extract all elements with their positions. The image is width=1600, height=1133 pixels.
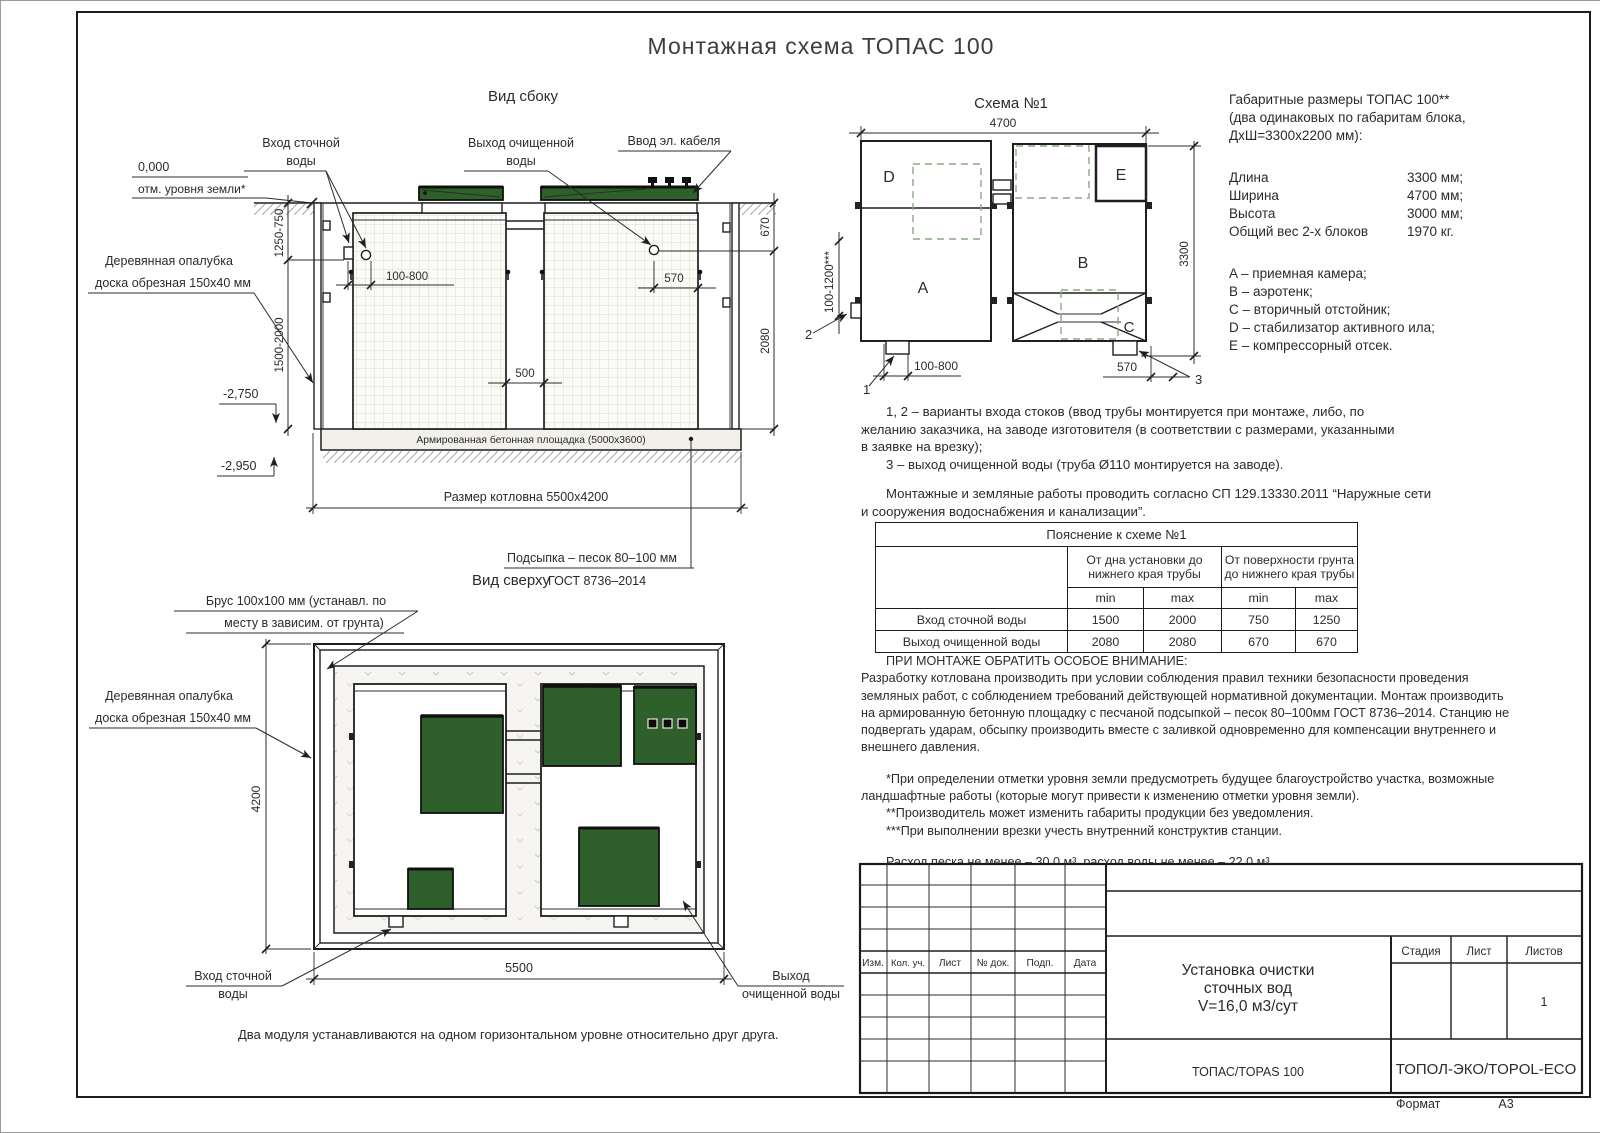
svg-text:доска обрезная 150х40 мм: доска обрезная 150х40 мм [95,711,251,725]
format-label: Формат [1396,1097,1440,1111]
outlet-port [649,245,658,254]
tank-lids [419,177,698,213]
side-view-title: Вид сбоку [488,88,558,105]
svg-text:воды: воды [218,987,247,1001]
rev-header: Лист [939,958,961,969]
schema-title: Схема №1 [974,95,1048,112]
topview-note: Два модуля устанавливаются на одном гори… [238,1027,779,1042]
tank-connector [506,221,544,229]
sheets-label: Листов [1525,946,1562,958]
stage-label: Стадия [1401,946,1440,958]
table-cell: Выход очищенной воды [876,631,1068,653]
svg-text:4700: 4700 [990,116,1017,130]
star-note: ***При выполнении врезки учесть внутренн… [861,823,1571,840]
rev-header: Изм. [862,958,884,969]
compartment-C: C [1124,319,1135,336]
legend-item: D – стабилизатор активного ила; [1229,319,1569,337]
star-note: *При определении отметки уровня земли пр… [861,771,1571,788]
tank-left [353,213,506,429]
doc-title-line: V=16,0 м3/сут [1198,998,1298,1015]
compressor-vents-icon [648,719,687,728]
table-group-1: От дна установки до нижнего края трубы [1068,547,1222,588]
rev-header: Кол. уч. [891,958,925,969]
specs-heading-2: (два одинаковых по габаритам блока, [1229,109,1569,127]
svg-text:100-800: 100-800 [386,271,428,283]
svg-text:0,000: 0,000 [138,160,169,174]
table-group-2: От поверхности грунта до нижнего края тр… [1222,547,1358,588]
spec-row: Высота 3000 мм; [1229,205,1569,223]
table-group-line: От поверхности грунта [1222,553,1357,568]
dim-depth: 1250-750 1500-2000 [274,195,344,436]
top-view-drawing: Вид сверху Брус 100х100 мм (устанавл. по… [86,561,846,1061]
table-cell: 670 [1296,631,1358,653]
format-line: Формат А3 [1396,1097,1514,1111]
drawing-sheet: Монтажная схема ТОПАС 100 Вид сбоку 0,00… [0,0,1600,1133]
attention-line: земляных работ, с соблюдением требований… [861,688,1571,705]
spacer [861,840,1571,854]
svg-text:воды: воды [286,154,315,168]
compartment-D: D [883,169,895,186]
title-block: Изм. Кол. уч. Лист № док. Подп. Дата Уст… [859,863,1583,1094]
beam-callout: Брус 100х100 мм (устанавл. по месту в за… [174,594,418,669]
spec-row: Ширина 4700 мм; [1229,187,1569,205]
star-note: **Производитель может изменить габариты … [861,805,1571,822]
table-min-header: min [1222,588,1296,609]
sheet-label: Лист [1467,946,1493,958]
table-min-header: min [1068,588,1144,609]
notes-block: 1, 2 – варианты входа стоков (ввод трубы… [861,403,1561,520]
module-right [541,684,701,927]
svg-text:Деревянная опалубка: Деревянная опалубка [105,254,233,268]
svg-text:100-1200***: 100-1200*** [824,250,836,313]
doc-title-line: Установка очистки [1182,962,1315,979]
svg-text:воды: воды [506,154,535,168]
topview-inlet-callout: Вход сточной воды [186,929,391,1001]
spacer [1229,145,1569,169]
table-cell: 1500 [1068,609,1144,631]
table-group-line: до нижнего края трубы [1222,567,1357,582]
top-view-title: Вид сверху [472,572,551,589]
topview-dim-width: 5500 [306,952,732,985]
table-cell: Вход сточной воды [876,609,1068,631]
legend-item: C – вторичный отстойник; [1229,301,1569,319]
table-cell: 750 [1222,609,1296,631]
note-line: 1, 2 – варианты входа стоков (ввод трубы… [861,403,1561,421]
svg-text:2080: 2080 [760,328,772,354]
spec-label: Высота [1229,205,1407,223]
product-name: ТОПАС/TOPAS 100 [1192,1065,1304,1079]
attention-block: ПРИ МОНТАЖЕ ОБРАТИТЬ ОСОБОЕ ВНИМАНИЕ: Ра… [861,653,1571,871]
topview-dim-height: 4200 [249,639,311,954]
svg-text:4200: 4200 [249,785,263,812]
table-max-header: max [1144,588,1222,609]
note-line: Монтажные и земляные работы проводить со… [861,485,1561,503]
svg-text:3: 3 [1195,372,1202,387]
svg-text:Брус 100х100 мм (устанавл. по: Брус 100х100 мм (устанавл. по [206,594,386,608]
table-cell: 1250 [1296,609,1358,631]
format-value: А3 [1498,1097,1513,1111]
schema-connector [993,180,1011,204]
schema-port-1: 1 [863,341,909,397]
schema-drawing: Схема №1 4700 D A [791,86,1221,426]
compartment-B: B [1078,255,1089,272]
spacer [1229,241,1569,265]
table-row: Выход очищенной воды 2080 2080 670 670 [876,631,1358,653]
specs-block: Габаритные размеры ТОПАС 100** (два один… [1229,91,1569,355]
attention-line: внешнего давления. [861,739,1571,756]
schema-dim-right: 3300 [1141,141,1201,364]
table-cell: 2000 [1144,609,1222,631]
svg-text:Вход сточной: Вход сточной [262,136,340,150]
concrete-pad-label: Армированная бетонная площадка (5000х360… [416,434,645,446]
topview-outlet-callout: Выход очищенной воды [683,901,844,1001]
table-max-header: max [1296,588,1358,609]
table-group-line: нижнего края трубы [1068,567,1221,582]
doc-title-line: сточных вод [1204,980,1292,997]
spec-label: Ширина [1229,187,1407,205]
module-left [349,684,506,927]
svg-text:Выход очищенной: Выход очищенной [468,136,574,150]
attention-line: подвергать ударам, обсыпку производить в… [861,722,1571,739]
star-note: ландшафтные работы (которые могут привес… [861,788,1571,805]
note-line: 3 – выход очищенной воды (труба Ø110 мон… [861,456,1561,474]
svg-text:100-800: 100-800 [914,359,958,373]
svg-text:1250-750: 1250-750 [274,209,286,258]
specs-heading-3: ДхШ=3300х2200 мм): [1229,127,1569,145]
svg-text:очищенной воды: очищенной воды [742,987,840,1001]
schema-block-right: E B C [1007,144,1152,341]
svg-text:Ввод эл. кабеля: Ввод эл. кабеля [628,134,721,148]
rev-header: Дата [1074,958,1097,969]
inlet-callout: Вход сточной воды [244,136,366,248]
attention-line: Разработку котлована производить при усл… [861,670,1571,687]
schema-dim-top: 4700 [849,116,1159,144]
legend-item: A – приемная камера; [1229,265,1569,283]
svg-text:Выход: Выход [772,969,810,983]
legend-item: B – аэротенк; [1229,283,1569,301]
table-cell: 670 [1222,631,1296,653]
table-cell: 2080 [1144,631,1222,653]
svg-text:5500: 5500 [505,961,533,975]
table-row: Вход сточной воды 1500 2000 750 1250 [876,609,1358,631]
note-line: в заявке на врезку); [861,438,1561,456]
svg-text:Деревянная опалубка: Деревянная опалубка [105,689,233,703]
svg-text:месту в зависим. от грунта): месту в зависим. от грунта) [224,616,384,630]
pit-size-label: Размер котловна 5500х4200 [444,490,608,504]
legend-item: E – компрессорный отсек. [1229,337,1569,355]
tank-right [544,213,698,429]
table-title: Пояснение к схеме №1 [876,523,1358,547]
page-title: Монтажная схема ТОПАС 100 [501,33,1141,60]
spec-row: Длина 3300 мм; [1229,169,1569,187]
rev-header: Подп. [1026,958,1053,969]
sheets-value: 1 [1541,995,1548,1009]
side-view-drawing: Вид сбоку 0,000 отм. уровня земли* [86,71,786,601]
svg-text:570: 570 [1117,360,1137,374]
svg-text:-2,750: -2,750 [223,387,258,401]
svg-text:2: 2 [805,327,812,342]
elevation-marks: -2,750 -2,950 [217,387,276,476]
note-line: и сооружения водоснабжения и канализации… [861,503,1561,521]
table-corner-cell [876,547,1068,609]
spec-label: Длина [1229,169,1407,187]
spec-label: Общий вес 2-х блоков [1229,223,1407,241]
svg-text:570: 570 [664,273,683,285]
spec-value: 3000 мм; [1407,205,1463,223]
svg-text:доска обрезная 150х40 мм: доска обрезная 150х40 мм [95,276,251,290]
compartment-A: A [918,280,929,297]
topview-formwork-callout: Деревянная опалубка доска обрезная 150х4… [89,689,311,758]
spec-row: Общий вес 2-х блоков 1970 кг. [1229,223,1569,241]
table-group-line: От дна установки до [1068,553,1221,568]
attention-heading: ПРИ МОНТАЖЕ ОБРАТИТЬ ОСОБОЕ ВНИМАНИЕ: [861,653,1571,670]
spec-value: 1970 кг. [1407,223,1454,241]
concrete-pad: Армированная бетонная площадка (5000х360… [321,429,741,450]
rev-header: № док. [977,958,1010,969]
schema-block-left: D A [855,141,997,341]
note-line: желанию заказчика, на заводе изготовител… [861,421,1561,439]
svg-text:670: 670 [760,217,772,236]
svg-text:1: 1 [863,382,870,397]
compartment-E: E [1116,167,1127,184]
spacer [861,473,1561,485]
svg-text:отм. уровня земли*: отм. уровня земли* [138,182,246,196]
spec-value: 4700 мм; [1407,187,1463,205]
svg-text:3300: 3300 [1179,241,1191,267]
cable-callout: Ввод эл. кабеля [618,134,731,193]
schema-dim-left: 100-1200*** [824,232,843,334]
svg-text:-2,950: -2,950 [221,459,256,473]
company-name: ТОПОЛ-ЭКО/TOPOL-ECO [1396,1061,1577,1078]
attention-line: на армированную бетонную площадку с песч… [861,705,1571,722]
spec-value: 3300 мм; [1407,169,1463,187]
explanation-table: Пояснение к схеме №1 От дна установки до… [875,522,1358,653]
spacer [861,757,1571,771]
table-cell: 2080 [1068,631,1144,653]
svg-text:Вход сточной: Вход сточной [194,969,272,983]
svg-text:500: 500 [515,368,534,380]
specs-heading-1: Габаритные размеры ТОПАС 100** [1229,91,1569,109]
